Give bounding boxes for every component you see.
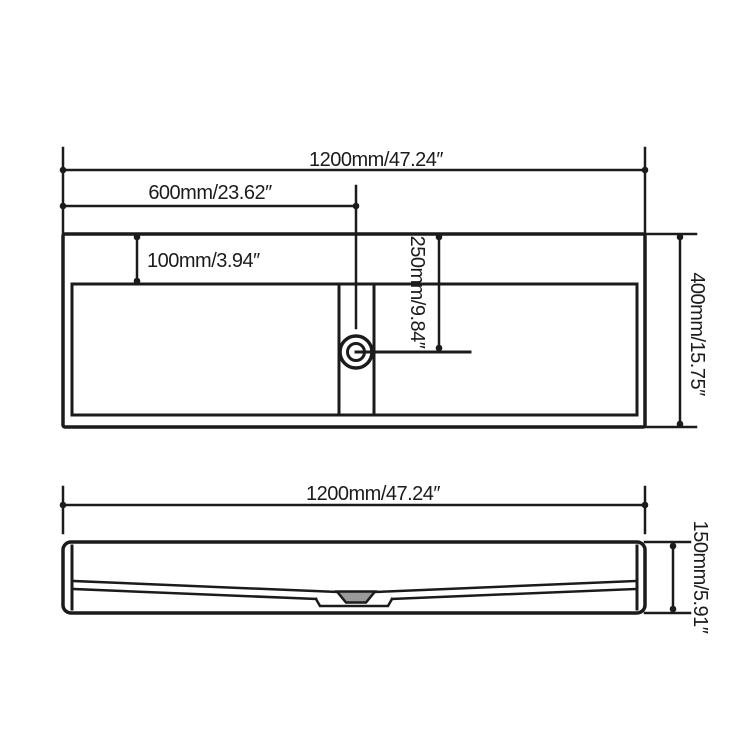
- dim-label-overall-width-top: 1200mm/47.24″: [309, 149, 443, 171]
- dim-endpoint-dot: [670, 543, 677, 550]
- dim-deck-depth: 100mm/3.94″: [134, 234, 260, 285]
- dim-endpoint-dot: [134, 234, 141, 241]
- dim-endpoint-dot: [436, 345, 443, 352]
- sink-technical-drawing: 1200mm/47.24″ 600mm/23.62″ 100mm/3.94″: [0, 0, 750, 750]
- dim-label-drain-offset-x: 600mm/23.62″: [148, 182, 272, 204]
- basin-inner-bowl-outline: [72, 284, 637, 415]
- dim-label-overall-height: 150mm/5.91″: [689, 521, 711, 634]
- dim-endpoint-dot: [60, 502, 67, 509]
- dim-endpoint-dot: [677, 234, 684, 241]
- dim-endpoint-dot: [60, 167, 67, 174]
- dim-overall-width-front: 1200mm/47.24″: [60, 483, 649, 533]
- dim-label-drain-offset-y: 250mm/9.84″: [406, 236, 428, 349]
- top-view: 1200mm/47.24″ 600mm/23.62″ 100mm/3.94″: [60, 148, 708, 427]
- dim-endpoint-dot: [670, 606, 677, 613]
- dim-endpoint-dot: [353, 203, 360, 210]
- drain-plug-icon: [337, 592, 375, 603]
- dim-endpoint-dot: [677, 421, 684, 428]
- front-view: 1200mm/47.24″ 150mm/5.91″: [60, 483, 711, 634]
- dim-endpoint-dot: [642, 502, 649, 509]
- dim-endpoint-dot: [134, 278, 141, 285]
- dim-endpoint-dot: [642, 167, 649, 174]
- dim-label-overall-width-front: 1200mm/47.24″: [306, 483, 440, 505]
- dim-endpoint-dot: [60, 203, 67, 210]
- dim-label-overall-depth: 400mm/15.75″: [686, 272, 708, 396]
- dim-overall-depth: 400mm/15.75″: [645, 234, 708, 428]
- dim-drain-offset-x: 600mm/23.62″: [60, 182, 360, 209]
- dim-drain-offset-y: 250mm/9.84″: [406, 234, 442, 352]
- dim-overall-height: 150mm/5.91″: [645, 521, 711, 634]
- drawing-svg: 1200mm/47.24″ 600mm/23.62″ 100mm/3.94″: [0, 0, 750, 750]
- dim-endpoint-dot: [436, 234, 443, 241]
- dim-label-deck-depth: 100mm/3.94″: [147, 250, 260, 272]
